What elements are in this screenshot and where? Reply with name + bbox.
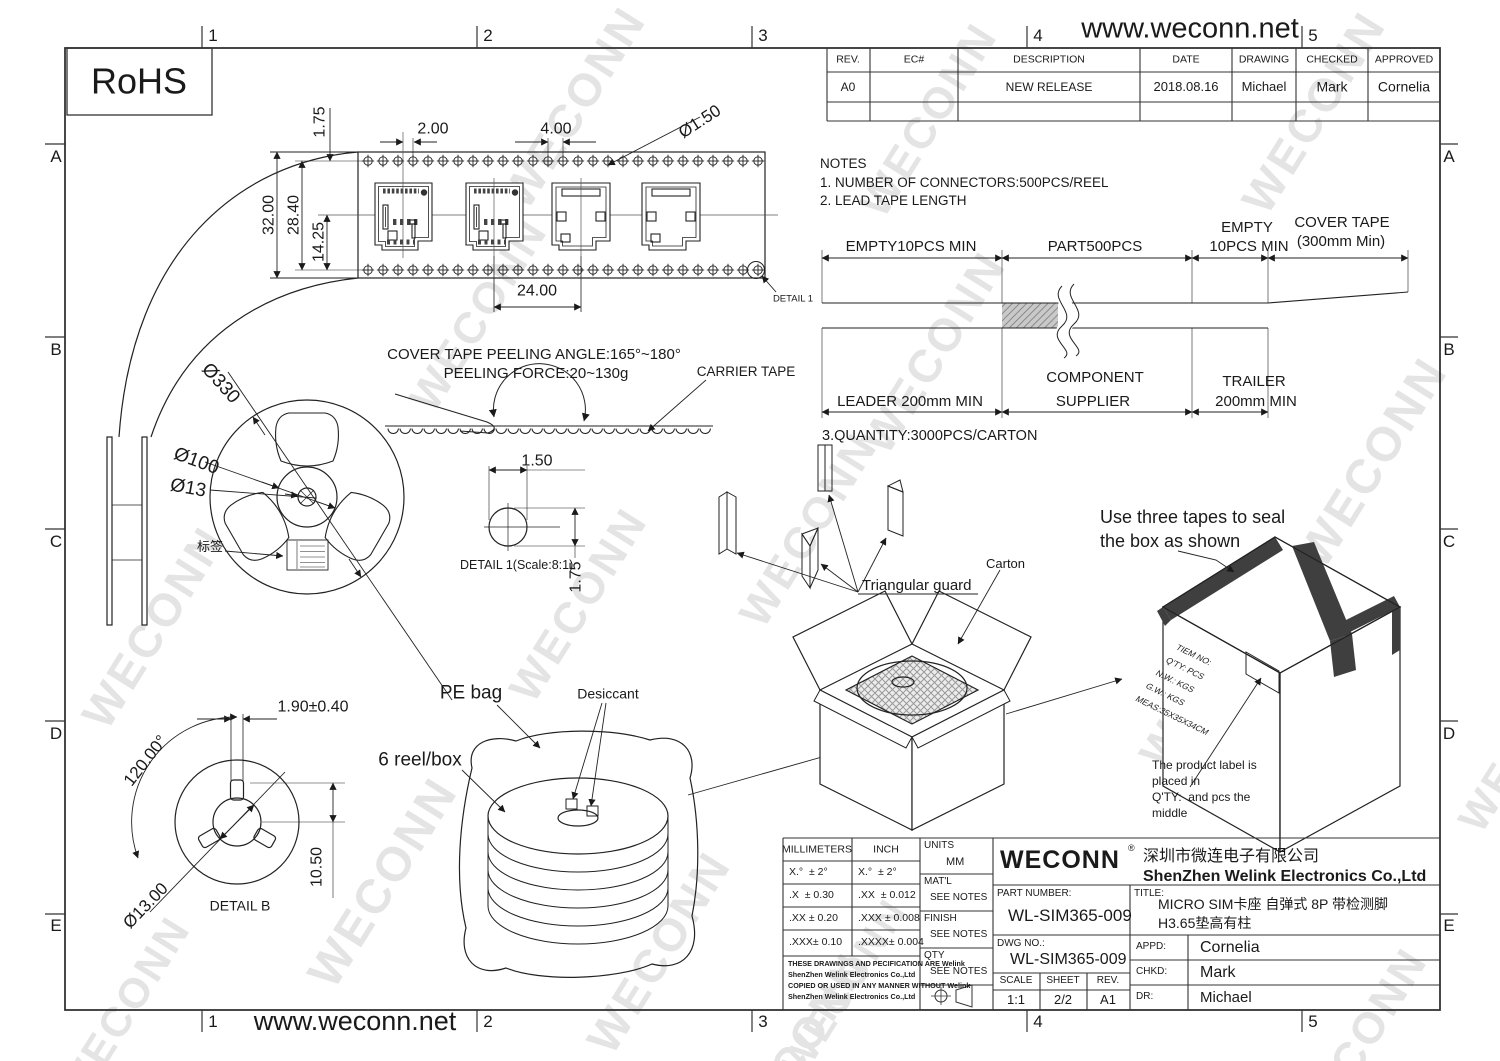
zone-number: 5: [1308, 1012, 1317, 1032]
chkd-label: CHKD:: [1136, 966, 1167, 978]
tol-cell: .XXXX± 0.004: [858, 936, 924, 949]
registered-mark: ®: [1128, 843, 1135, 854]
zone-number: 2: [483, 26, 492, 46]
disclaimer-line: ShenZhen Welink Electronics Co.,Ltd: [788, 993, 915, 1002]
zone-letter: B: [1443, 340, 1454, 360]
rev-drawing-name: Michael: [1242, 79, 1287, 95]
detail1-caption: DETAIL 1(Scale:8:1): [460, 558, 573, 573]
zone-letter: C: [1443, 532, 1455, 552]
trailer-label2: 200mm MIN: [1215, 393, 1297, 411]
company-name-cn: 深圳市微连电子有限公司: [1143, 847, 1319, 866]
detailB-slot-dim: 1.90±0.40: [277, 697, 348, 716]
zone-letter: D: [50, 724, 62, 744]
detail1-callout-label: DETAIL 1: [773, 293, 813, 304]
chkd-value: Mark: [1200, 963, 1236, 982]
dwg-no-value: WL-SIM365-009: [1010, 950, 1127, 969]
brand-logo-text: WECONN: [1000, 845, 1120, 875]
product-label-note: middle: [1152, 806, 1187, 820]
cover-tape-label: COVER TAPE: [1294, 214, 1389, 232]
dwg-no-label: DWG NO.:: [997, 938, 1045, 950]
qty-label: QTY: [924, 950, 945, 962]
title-line2: H3.65垫高有柱: [1158, 915, 1251, 932]
pe-bag-view: [459, 703, 836, 977]
tol-cell: .XXX ± 0.008: [858, 912, 920, 925]
note-item: 1. NUMBER OF CONNECTORS:500PCS/REEL: [820, 175, 1109, 191]
rev-col-header: DATE: [1172, 54, 1199, 67]
rev-checked-name: Mark: [1316, 79, 1347, 96]
product-label-note: placed in: [1152, 774, 1200, 788]
zone-number: 5: [1308, 26, 1317, 46]
scale-label: SCALE: [1000, 975, 1033, 987]
component-label2: SUPPLIER: [1056, 393, 1130, 411]
part-number-value: WL-SIM365-009: [1008, 906, 1132, 926]
appd-value: Cornelia: [1200, 938, 1260, 957]
empty-right-label: EMPTY: [1221, 219, 1273, 237]
zone-number: 2: [483, 1012, 492, 1032]
rev-date: 2018.08.16: [1153, 79, 1218, 95]
pe-bag-label: PE bag: [440, 683, 502, 706]
trailer-label: TRAILER: [1222, 373, 1285, 391]
detailB-caption: DETAIL B: [210, 898, 271, 915]
zone-letter: A: [1443, 147, 1454, 167]
tol-cell: .XX ± 0.012: [858, 889, 916, 902]
dim-4_00: 4.00: [540, 119, 571, 138]
dr-label: DR:: [1136, 991, 1153, 1003]
tol-cell: X.° ± 2°: [789, 866, 828, 879]
rev-value: A1: [1100, 992, 1116, 1008]
rev-col-header: DESCRIPTION: [1013, 54, 1085, 67]
cover-tape-label2: (300mm Min): [1297, 233, 1385, 251]
sheet-label: SHEET: [1046, 975, 1079, 987]
rev-description: NEW RELEASE: [1006, 80, 1093, 94]
appd-label: APPD:: [1136, 941, 1166, 953]
carton-label: Carton: [986, 556, 1025, 572]
rev-col-header: REV.: [836, 54, 860, 67]
notes-title: NOTES: [820, 156, 867, 172]
seal-note-line2: the box as shown: [1100, 531, 1240, 553]
zone-number: 3: [758, 1012, 767, 1032]
tol-cell: .X ± 0.30: [789, 889, 834, 902]
finish-label: FINISH: [924, 913, 957, 925]
disclaimer-line: COPIED OR USED IN ANY MANNER WITHOUT Wel…: [788, 982, 970, 991]
units-value: MM: [946, 856, 964, 869]
disclaimer-line: ShenZhen Welink Electronics Co.,Ltd: [788, 971, 915, 980]
drawing-sheet: WECONN WECONN WECONN WECONN WECONN WECON…: [0, 0, 1500, 1061]
rev-col-header: EC#: [904, 54, 924, 67]
note-item: 3.QUANTITY:3000PCS/CARTON: [822, 428, 1037, 445]
leader-label: LEADER 200mm MIN: [837, 393, 983, 411]
seal-note-line1: Use three tapes to seal: [1100, 507, 1285, 529]
part-number-label: PART NUMBER:: [997, 888, 1071, 900]
rev-label: REV.: [1097, 975, 1119, 987]
zone-number: 1: [208, 26, 217, 46]
dim-24_00: 24.00: [517, 281, 557, 300]
tol-header-mm: MILLIMETERS: [782, 844, 852, 857]
sheet-value: 2/2: [1054, 992, 1072, 1008]
rev-col-header: CHECKED: [1306, 54, 1357, 67]
rev-col-header: APPROVED: [1375, 54, 1433, 67]
dim-2_00: 2.00: [417, 119, 448, 138]
rev-col-header: DRAWING: [1239, 54, 1289, 67]
zone-letter: D: [1443, 724, 1455, 744]
zone-number: 3: [758, 26, 767, 46]
tol-cell: .XXX± 0.10: [789, 936, 842, 949]
finish-value: SEE NOTES: [930, 929, 987, 941]
zone-letter: C: [50, 532, 62, 552]
matl-label: MAT'L: [924, 876, 952, 888]
dim-14_25: 14.25: [309, 222, 328, 262]
qty-value: SEE NOTES: [930, 966, 987, 978]
detail1-width-dim: 1.50: [521, 451, 552, 470]
peel-force-label: PEELING FORCE:20~130g: [444, 365, 629, 383]
rev-value: A0: [841, 80, 856, 94]
site-url-top: www.weconn.net: [1081, 12, 1299, 47]
dim-28_40: 28.40: [284, 195, 303, 235]
note-item: 2. LEAD TAPE LENGTH: [820, 193, 967, 209]
empty-left-label: EMPTY10PCS MIN: [846, 238, 977, 256]
detail1-view: [484, 466, 585, 558]
zone-number: 4: [1033, 26, 1042, 46]
part-label: PART500PCS: [1048, 238, 1143, 256]
triangular-guard-label: Triangular guard: [862, 577, 972, 595]
tol-header-inch: INCH: [873, 844, 899, 857]
desiccant-label: Desiccant: [577, 686, 638, 703]
peel-angle-label: COVER TAPE PEELING ANGLE:165°~180°: [387, 346, 681, 364]
zone-number: 1: [208, 1012, 217, 1032]
dim-32_00: 32.00: [259, 195, 278, 235]
matl-value: SEE NOTES: [930, 892, 987, 904]
units-label: UNITS: [924, 840, 954, 852]
empty-right-label2: 10PCS MIN: [1209, 238, 1288, 256]
zone-letter: E: [50, 916, 61, 936]
tol-cell: X.° ± 2°: [858, 866, 897, 879]
reel-per-box-label: 6 reel/box: [378, 750, 461, 773]
zone-number: 4: [1033, 1012, 1042, 1032]
dr-value: Michael: [1200, 989, 1252, 1007]
reel-tag-label: 标签: [197, 539, 223, 555]
company-name-en: ShenZhen Welink Electronics Co.,Ltd: [1143, 867, 1426, 886]
zone-letter: A: [50, 147, 61, 167]
rohs-label: RoHS: [91, 59, 187, 102]
carrier-tape-label: CARRIER TAPE: [697, 364, 796, 380]
component-label: COMPONENT: [1046, 369, 1144, 387]
zone-letter: B: [50, 340, 61, 360]
product-label-note: The product label is: [1152, 758, 1257, 772]
rev-approved-name: Cornelia: [1378, 79, 1430, 96]
title-line1: MICRO SIM卡座 自弹式 8P 带检测脚: [1158, 896, 1388, 913]
site-url-bottom: www.weconn.net: [254, 1005, 457, 1037]
product-label-note: Q'TY: and pcs the: [1152, 790, 1250, 804]
scale-value: 1:1: [1007, 992, 1025, 1008]
detailB-radius-dim: 10.50: [307, 847, 326, 887]
carton-view: [719, 445, 1122, 830]
dim-1_75: 1.75: [310, 106, 329, 137]
tol-cell: .XX ± 0.20: [789, 912, 838, 925]
zone-letter: E: [1443, 916, 1454, 936]
